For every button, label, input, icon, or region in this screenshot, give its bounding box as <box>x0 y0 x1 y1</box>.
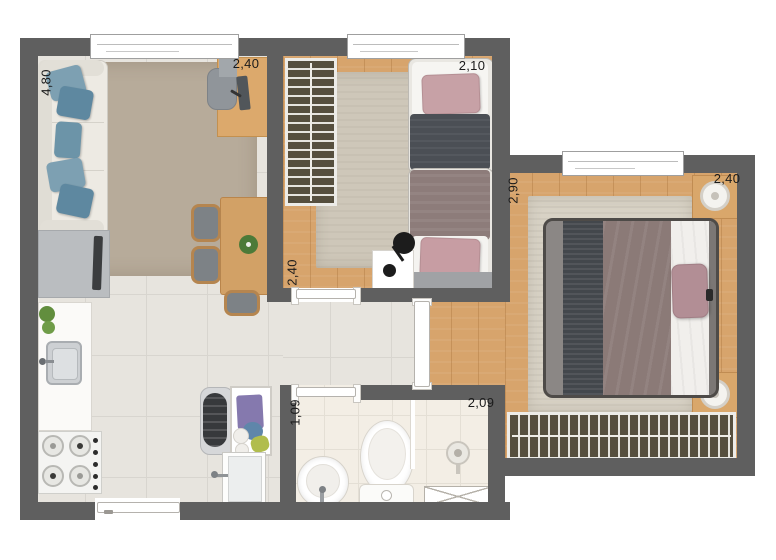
kitchen-sink-basin <box>52 348 78 380</box>
table-lamp-center <box>711 192 719 200</box>
wall-master-right <box>737 155 755 476</box>
master-bedroom-door <box>414 301 430 387</box>
bedroom2-wardrobe <box>285 58 337 206</box>
hallway-floor <box>283 302 424 385</box>
dining-chair <box>191 204 221 242</box>
tv <box>92 236 103 290</box>
wall-left <box>20 38 38 520</box>
dimension-master-width: 2,40 <box>707 171 747 186</box>
stove-knob <box>93 474 98 479</box>
shower-stem <box>456 464 460 474</box>
kitchen-faucet-stem <box>45 360 54 363</box>
stove-knob <box>93 438 98 443</box>
dimension-living-depth: 2,40 <box>226 56 266 71</box>
laundry-faucet-handle <box>211 471 218 478</box>
wall-bottom <box>180 502 510 520</box>
living-room-window <box>90 34 239 59</box>
master-bedroom-window <box>562 151 684 176</box>
dimension-bedroom2-depth: 2,40 <box>285 253 300 293</box>
stove-burner-cap <box>77 443 83 449</box>
floor-plan: 4,80 2,40 2,10 2,40 2,90 2,40 1,09 2,09 <box>0 0 776 560</box>
bed-headboard <box>709 221 719 395</box>
floor-lamp-base <box>383 264 396 277</box>
master-wardrobe <box>507 412 736 460</box>
single-bed-top-blanket <box>410 114 490 170</box>
dimension-bathroom-length: 2,09 <box>461 395 501 410</box>
dimension-bathroom-width: 1,09 <box>288 393 303 433</box>
toilet-flush-button <box>381 490 392 501</box>
entrance-door-handle <box>104 510 113 514</box>
stove-burner-cap <box>50 443 56 449</box>
dimension-bedroom2-width: 2,10 <box>452 58 492 73</box>
single-bed-top-pillow <box>421 73 480 115</box>
wall-living-bedroom2 <box>267 38 283 302</box>
counter-plant <box>42 321 55 334</box>
table-plant-center <box>246 242 251 247</box>
sofa-pillow <box>56 85 95 120</box>
stove-knob <box>93 450 98 455</box>
master-entry-floor <box>424 302 505 385</box>
bedroom2-window <box>347 34 465 59</box>
dining-chair <box>224 290 260 316</box>
bed-knit-throw <box>563 221 603 395</box>
dimension-living-width: 4,80 <box>39 63 54 103</box>
bed-foot-band <box>546 221 563 395</box>
stove-knob <box>93 485 98 490</box>
toilet-bowl-inner <box>368 428 406 480</box>
wall-master-bottom <box>488 458 755 476</box>
shower-drain-center <box>454 449 462 457</box>
wall-bedroom2-bottom <box>357 288 510 302</box>
counter-plant <box>39 306 55 322</box>
bedroom2-door <box>296 289 356 299</box>
bathroom-door <box>296 387 356 397</box>
laundry-tub-basin <box>228 456 262 502</box>
bed-duvet-mauve <box>603 221 671 395</box>
dining-chair <box>191 246 221 284</box>
bedside-item <box>706 289 713 301</box>
sofa-pillow <box>54 121 82 159</box>
stove-knob <box>93 462 98 467</box>
wall-bottom <box>20 502 95 520</box>
bathroom-faucet-handle <box>319 486 326 493</box>
single-bed-bottom-blanket <box>410 170 490 240</box>
master-bed-pillow <box>671 263 709 318</box>
washing-machine-drum <box>203 393 227 447</box>
stove-burner-cap <box>50 473 56 479</box>
stove-burner-cap <box>77 473 83 479</box>
dimension-master-depth: 2,90 <box>506 171 521 211</box>
towel-roll <box>233 428 249 444</box>
